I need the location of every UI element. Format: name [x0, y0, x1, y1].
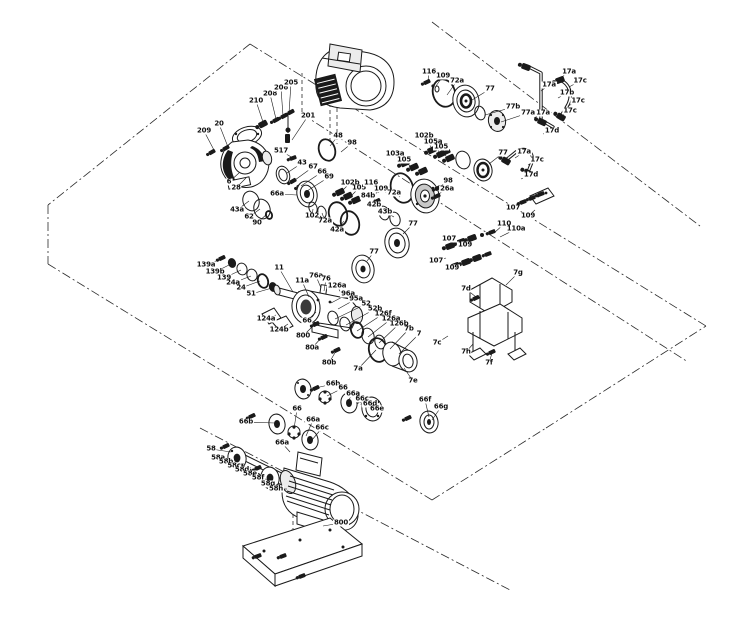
seal-disc: [472, 157, 494, 182]
exploded-diagram: 2092021020820620520151762848984367666966…: [0, 0, 752, 632]
pipe-set-mid: [497, 150, 554, 204]
fitting-strip-1: [441, 229, 496, 252]
coupling-disc-low: [349, 253, 376, 285]
leader-lines: [204, 72, 580, 526]
coupling-disc-mid: [382, 226, 412, 260]
pipe-set-top: [517, 61, 570, 127]
pump-head: [221, 123, 273, 189]
exploded-diagram-canvas: [0, 0, 752, 632]
coupling-flange-1: [293, 378, 313, 401]
row-b-parts: [420, 61, 570, 133]
top-motor-unit: [314, 44, 394, 110]
row-c-parts: [326, 145, 554, 285]
coupling-spider-1: [318, 390, 331, 404]
coupling-flange-2: [339, 392, 359, 415]
row-e-parts: [219, 378, 440, 495]
coupling-flange-6: [300, 429, 320, 452]
coupling-flange-5: [267, 413, 287, 436]
bottom-motor: [243, 452, 362, 586]
bracket-set: [468, 278, 526, 360]
fitting-strip-2: [446, 251, 492, 272]
